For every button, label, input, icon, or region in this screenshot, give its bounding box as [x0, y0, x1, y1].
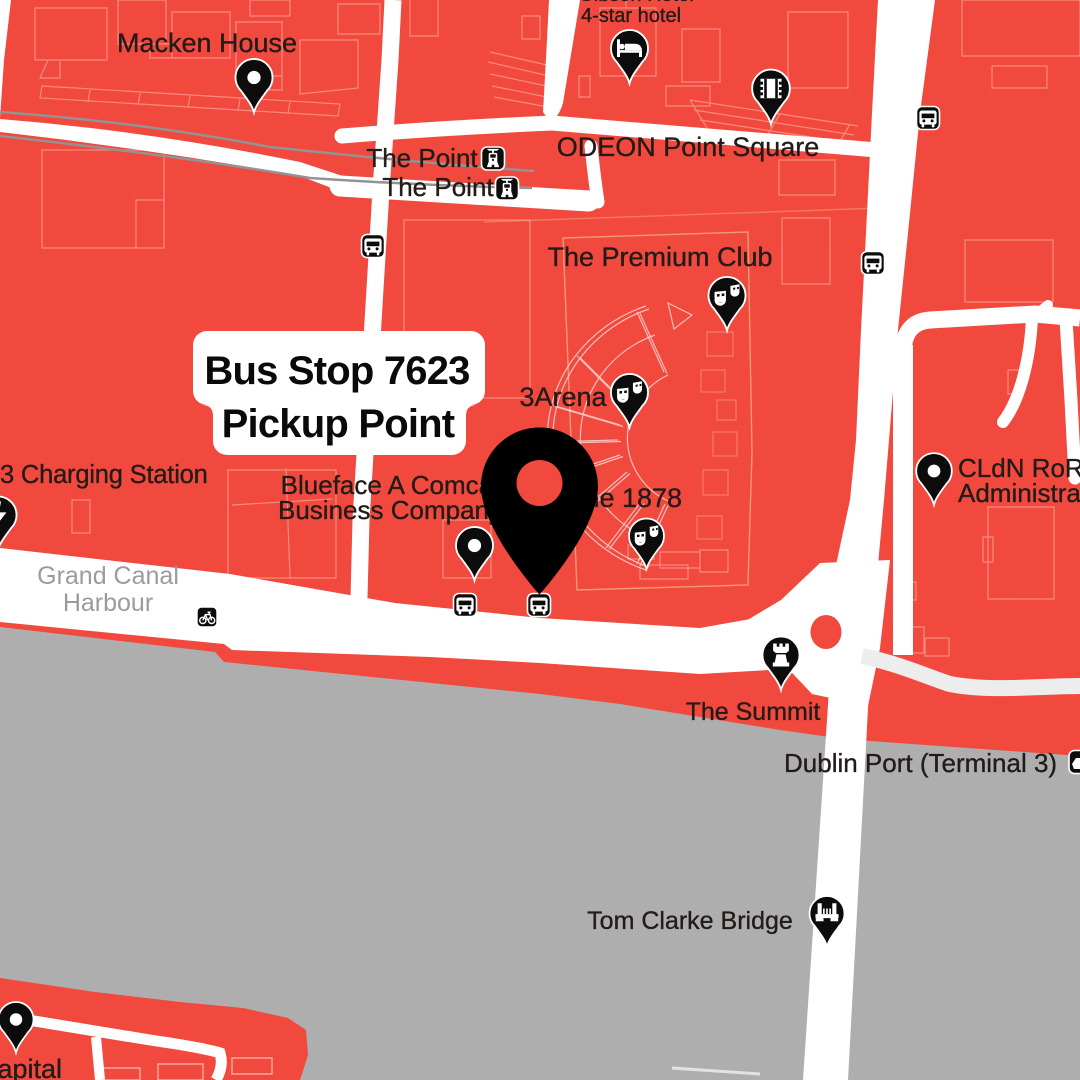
svg-text:Bus Stop 7623: Bus Stop 7623	[204, 349, 469, 393]
svg-text:Administration: Administration	[958, 478, 1080, 508]
svg-text:Grand Canal: Grand Canal	[37, 562, 179, 590]
svg-text:The Point: The Point	[382, 172, 494, 202]
svg-text:Harbour: Harbour	[63, 589, 153, 617]
svg-text:ODEON Point Square: ODEON Point Square	[557, 132, 820, 162]
svg-text:Tom Clarke Bridge: Tom Clarke Bridge	[587, 907, 793, 935]
svg-text:Capital: Capital	[0, 1054, 62, 1080]
svg-text:The Premium Club: The Premium Club	[547, 242, 772, 272]
svg-text:The Point: The Point	[366, 143, 478, 173]
svg-text:Business Company: Business Company	[278, 495, 502, 525]
svg-text:3Arena: 3Arena	[519, 382, 607, 412]
svg-text:4-star hotel: 4-star hotel	[581, 5, 681, 27]
svg-text:Dublin Port (Terminal 3): Dublin Port (Terminal 3)	[784, 748, 1057, 778]
svg-text:The Summit: The Summit	[686, 698, 821, 726]
svg-text:Macken House: Macken House	[117, 28, 297, 58]
svg-text:Pickup Point: Pickup Point	[222, 402, 455, 446]
svg-text:3 Charging Station: 3 Charging Station	[0, 461, 208, 489]
